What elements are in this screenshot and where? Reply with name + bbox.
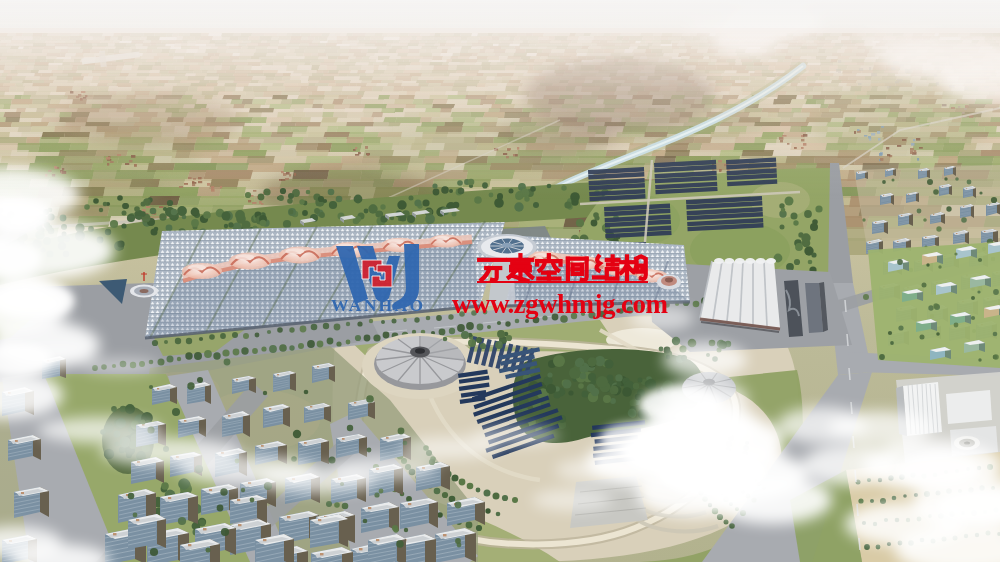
svg-text:www.zgwhmjg.com: www.zgwhmjg.com (452, 289, 669, 319)
